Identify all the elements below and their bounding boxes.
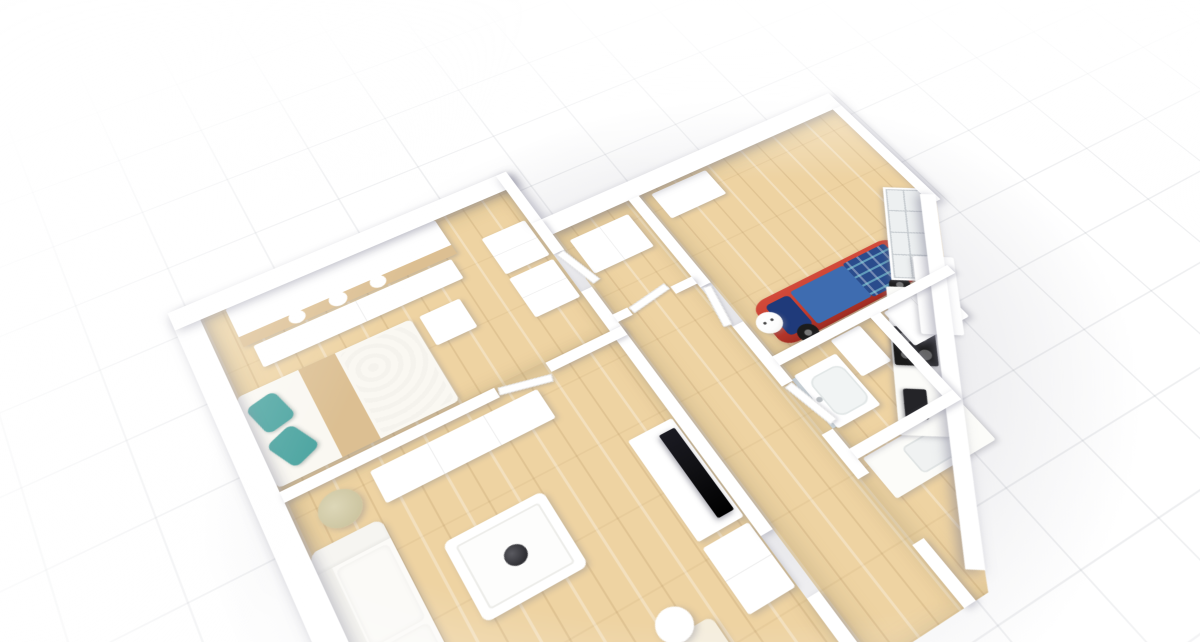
floorplan-3d-viewport[interactable] (0, 0, 1200, 642)
plush-eye (763, 321, 768, 325)
plush-eye (770, 318, 775, 322)
background-grid (0, 0, 1200, 642)
apartment-floorplan (167, 43, 1200, 642)
